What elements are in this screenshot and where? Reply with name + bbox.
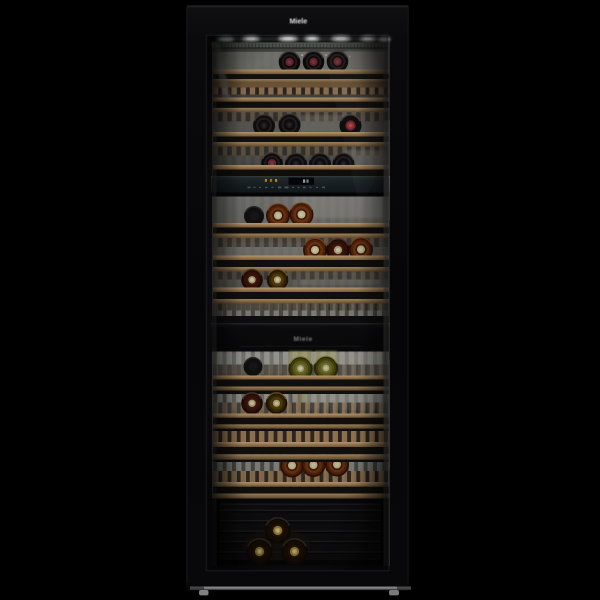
svg-text:Miele: Miele [290, 16, 308, 25]
